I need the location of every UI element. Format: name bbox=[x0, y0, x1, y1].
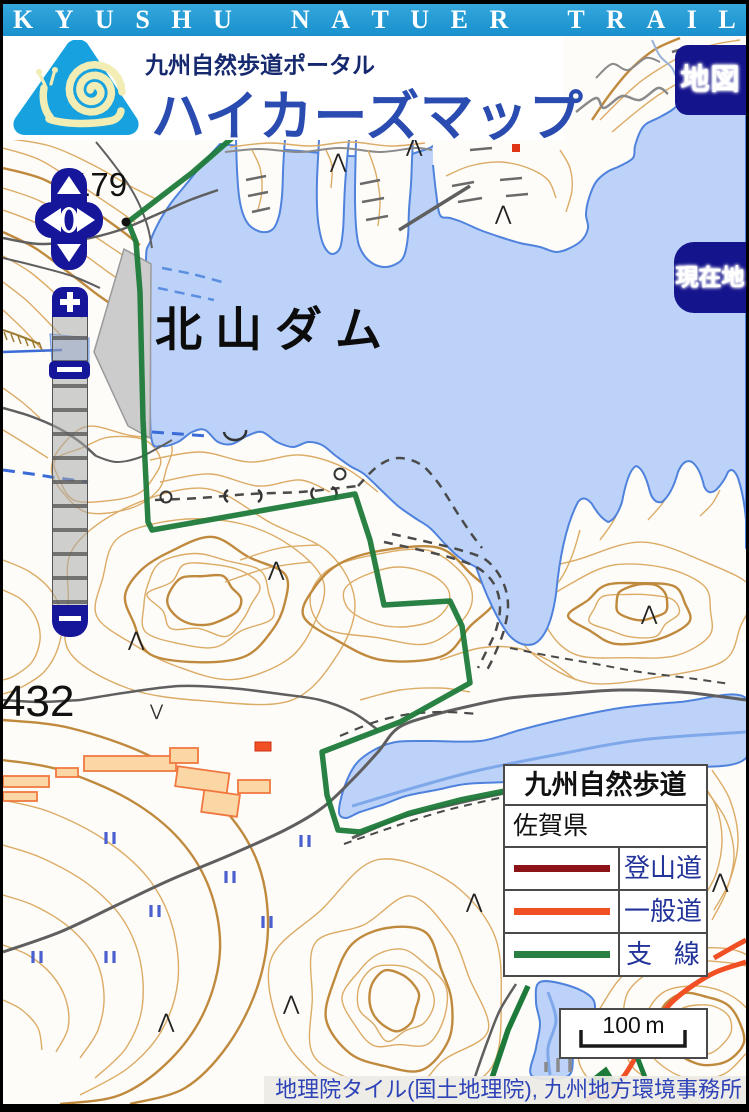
svg-text:⋀: ⋀ bbox=[640, 603, 658, 625]
svg-text:北山ダム: 北山ダム bbox=[155, 303, 395, 356]
svg-text:⋀: ⋀ bbox=[494, 203, 512, 225]
svg-text:⋀: ⋀ bbox=[465, 891, 483, 913]
svg-text:⋀: ⋀ bbox=[127, 629, 145, 651]
svg-text:⋀: ⋀ bbox=[157, 1011, 175, 1033]
svg-text:⋁: ⋁ bbox=[149, 703, 164, 720]
svg-text:⋀: ⋀ bbox=[711, 871, 729, 893]
svg-text:432: 432 bbox=[3, 677, 74, 726]
svg-text:⋀: ⋀ bbox=[329, 151, 347, 173]
svg-text:⋀: ⋀ bbox=[282, 993, 300, 1015]
svg-text:⋀: ⋀ bbox=[267, 559, 285, 581]
